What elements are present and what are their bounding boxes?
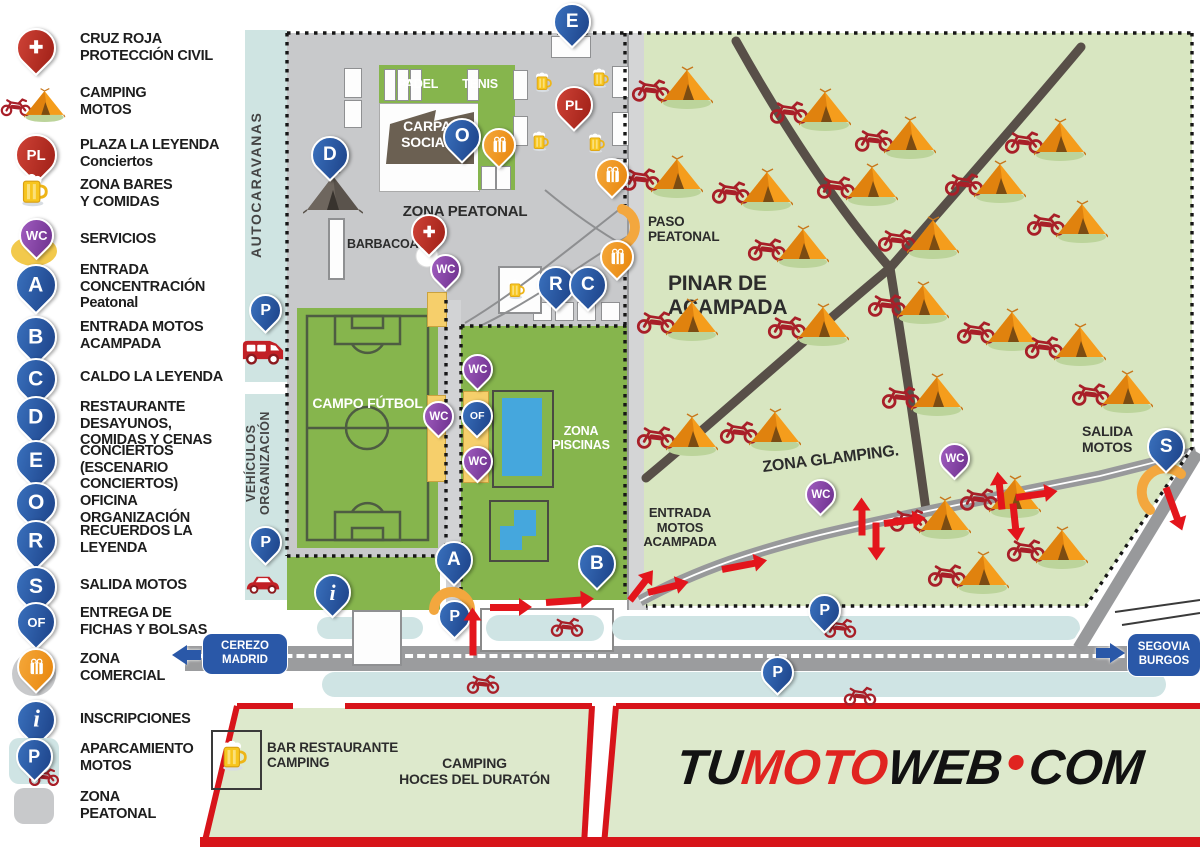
motorcycle-icon bbox=[550, 615, 584, 637]
map-pin-wc-2: WC bbox=[416, 395, 460, 439]
arrow-west-icon bbox=[172, 645, 202, 665]
direction-arrow bbox=[470, 620, 477, 656]
direction-arrow bbox=[721, 560, 756, 573]
beer-mug-icon bbox=[508, 279, 525, 300]
camping-tent-moto-icon bbox=[719, 406, 807, 452]
camping-tent-moto-icon bbox=[927, 549, 1015, 595]
camping-tent-moto-icon bbox=[1071, 368, 1159, 414]
camping-tent-moto-icon bbox=[1026, 198, 1114, 244]
sign-cerezo-madrid: CEREZO MADRID bbox=[203, 634, 287, 674]
beer-mug-icon bbox=[588, 133, 605, 154]
camping-tent-moto-icon bbox=[881, 371, 969, 417]
camping-tent-moto-icon bbox=[636, 411, 724, 457]
camping-tent-moto-icon bbox=[631, 64, 719, 110]
camping-tent-moto-icon bbox=[747, 223, 835, 269]
beer-mug-icon bbox=[532, 131, 549, 152]
map-pin-o-oficina: O bbox=[435, 110, 489, 164]
map-pin-b-entrada-motos: B bbox=[570, 537, 624, 591]
map-pin-e-conciertos: E bbox=[545, 0, 599, 49]
map-pin-wc-3: WC bbox=[455, 348, 499, 392]
sign-segovia-burgos: SEGOVIA BURGOS bbox=[1128, 634, 1200, 676]
arrow-east-icon bbox=[1096, 643, 1126, 663]
map-pin-wc-5: WC bbox=[798, 473, 842, 517]
map-pin-d-restaurante: D bbox=[303, 128, 357, 182]
camping-tent-moto-icon bbox=[621, 153, 709, 199]
camping-tent-moto-icon bbox=[877, 214, 965, 260]
direction-arrow bbox=[546, 596, 582, 605]
motorcycle-icon bbox=[466, 672, 500, 694]
beer-mug-icon bbox=[535, 72, 552, 93]
map-pin-parking-vehiculos: P bbox=[242, 519, 289, 566]
map-pin-a-entrada: A bbox=[427, 533, 481, 587]
direction-arrow bbox=[1163, 486, 1181, 520]
map-icons: EOPLDRCABSi✚PPPPPWCWCWCOFWCWCWC bbox=[0, 0, 1200, 847]
camping-tent-moto-icon bbox=[769, 86, 857, 132]
map-pin-inscripciones: i bbox=[306, 566, 358, 618]
map-pin-parking-autocaravanas: P bbox=[242, 287, 289, 334]
direction-arrow bbox=[627, 578, 649, 603]
map-pin-comercial-1 bbox=[475, 121, 523, 169]
map-pin-cruz-roja: ✚ bbox=[404, 207, 455, 258]
camping-tent-moto-icon bbox=[944, 158, 1032, 204]
direction-arrow bbox=[859, 510, 866, 536]
map-pin-parking-road-2: P bbox=[754, 649, 801, 696]
event-map-poster: AUTOCARAVANAS VEHÍCULOS ORGANIZACIÓN PAD… bbox=[0, 0, 1200, 847]
camping-tent-moto-icon bbox=[636, 296, 724, 342]
camping-tent-moto-icon bbox=[1004, 116, 1092, 162]
direction-arrow bbox=[490, 604, 520, 611]
camping-tent-moto-icon bbox=[767, 301, 855, 347]
camping-tent-moto-icon bbox=[816, 161, 904, 207]
map-pin-s-salida: S bbox=[1139, 420, 1193, 474]
camping-tent-moto-icon bbox=[1024, 321, 1112, 367]
camping-tent-moto-icon bbox=[711, 166, 799, 212]
beer-mug-icon bbox=[592, 68, 609, 89]
direction-arrow bbox=[873, 523, 880, 549]
motorcycle-icon bbox=[843, 684, 877, 706]
map-pin-wc-4: WC bbox=[455, 440, 499, 484]
map-pin-of-fichas: OF bbox=[454, 393, 499, 438]
camping-tent-moto-icon bbox=[854, 114, 942, 160]
camping-tent-moto-icon bbox=[867, 279, 955, 325]
